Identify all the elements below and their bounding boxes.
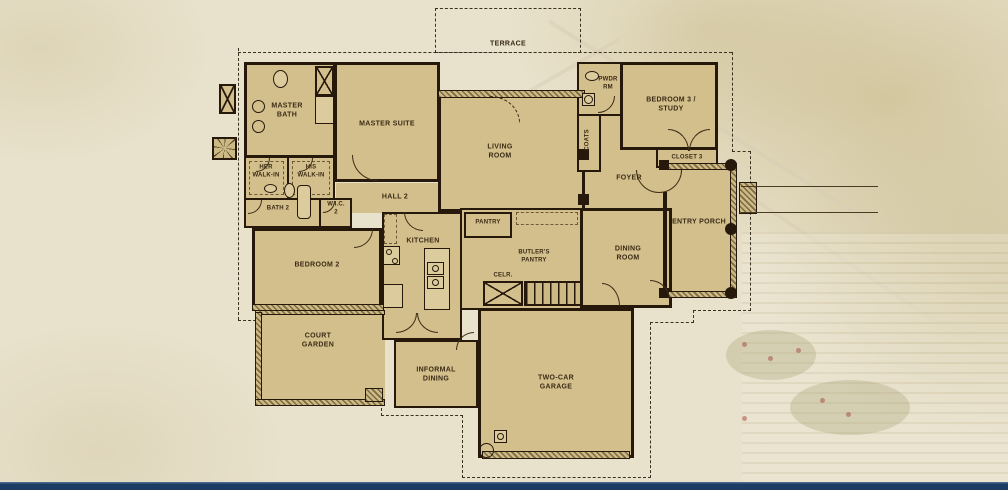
porch-column-icon (725, 287, 737, 299)
room-label-informal-dining: INFORMAL DINING (416, 366, 455, 384)
roofline-dash (732, 52, 733, 152)
porch-column-icon (725, 223, 737, 235)
burner-icon (386, 249, 392, 255)
room-label-dining-room: DINING ROOM (615, 245, 641, 263)
roofline-dash (462, 415, 463, 478)
roofline-dash (238, 52, 732, 53)
porch-column-icon (725, 159, 737, 171)
roofline-dash (381, 415, 463, 416)
room-label-two-car-garage: TWO-CAR GARAGE (538, 374, 574, 392)
room-label-butlers-pantry: BUTLER'S PANTRY (518, 250, 549, 265)
court-garden-wall-left (255, 312, 262, 404)
room-label-his-walkin: HIS WALK-IN (297, 165, 324, 180)
room-label-master-bath: MASTER BATH (271, 102, 302, 120)
bathtub-icon (297, 185, 311, 219)
room-label-hall-2: HALL 2 (382, 194, 408, 203)
porch-walkway-line (741, 186, 878, 187)
room-label-kitchen: KITCHEN (406, 238, 439, 247)
room-label-master-suite: MASTER SUITE (359, 121, 415, 130)
court-garden-steps (365, 388, 383, 402)
room-label-pwdr-rm: PWDR RM (598, 77, 617, 92)
refrigerator-icon (383, 284, 403, 308)
room-label-closet-3: CLOSET 3 (672, 154, 703, 162)
column (578, 194, 589, 205)
porch-wall-left (663, 192, 667, 298)
floor-plan-page: TERRACE MASTER BATH MASTER SUITE HER WAL… (0, 0, 1008, 490)
kitchen-counter (384, 214, 397, 244)
burner-icon (392, 258, 398, 264)
room-label-living-room: LIVING ROOM (487, 143, 512, 161)
roofline-dash (650, 322, 651, 478)
sink-icon (252, 100, 265, 113)
sink-icon (585, 71, 599, 81)
master-closet-icon (315, 66, 334, 96)
room-label-entry-porch: ENTRY PORCH (672, 219, 726, 228)
living-terrace-wall (438, 90, 585, 98)
garage-door (482, 451, 630, 459)
roofline-dash (650, 322, 694, 323)
toilet-bowl-icon (584, 95, 593, 104)
sink-icon (252, 120, 265, 133)
room-label-wic-2: W.I.C. 2 (327, 202, 345, 217)
hvac-unit-icon (219, 84, 236, 114)
room-label-foyer: FOYER (616, 175, 642, 184)
room-label-pantry: PANTRY (475, 219, 500, 227)
butlers-cabinets (516, 212, 578, 225)
toilet-icon (284, 183, 295, 198)
stairs-icon (524, 281, 582, 306)
floor-drain-icon (479, 443, 494, 458)
porch-walkway-line (741, 212, 878, 213)
toilet-icon (273, 70, 288, 88)
roofline-dash (693, 310, 751, 311)
sink-icon (264, 184, 277, 193)
room-label-court-garden: COURT GARDEN (302, 332, 334, 350)
column (659, 160, 669, 170)
condenser-fan-icon (212, 137, 237, 160)
water-heater-dot-icon (497, 433, 504, 440)
room-label-bedroom-2: BEDROOM 2 (294, 262, 339, 271)
room-label-bedroom-3: BEDROOM 3 / STUDY (646, 96, 696, 114)
room-label-bath-2: BATH 2 (267, 205, 289, 213)
burner-icon (432, 265, 439, 272)
room-label-terrace: TERRACE (490, 41, 526, 50)
roofline-dash (750, 151, 751, 311)
roofline-dash (238, 48, 239, 320)
floor-plan: TERRACE MASTER BATH MASTER SUITE HER WAL… (0, 0, 1008, 490)
roofline-dash (462, 477, 651, 478)
room-label-coats: COATS (584, 129, 592, 151)
room-label-cellar: CELR. (494, 272, 513, 280)
elevator-icon (483, 281, 523, 306)
court-garden-wall-top (255, 310, 385, 315)
burner-icon (432, 279, 439, 286)
master-shower (315, 96, 334, 124)
room-label-her-walkin: HER WALK-IN (252, 165, 279, 180)
roofline-dash (732, 151, 751, 152)
page-footer-bar (0, 482, 1008, 490)
